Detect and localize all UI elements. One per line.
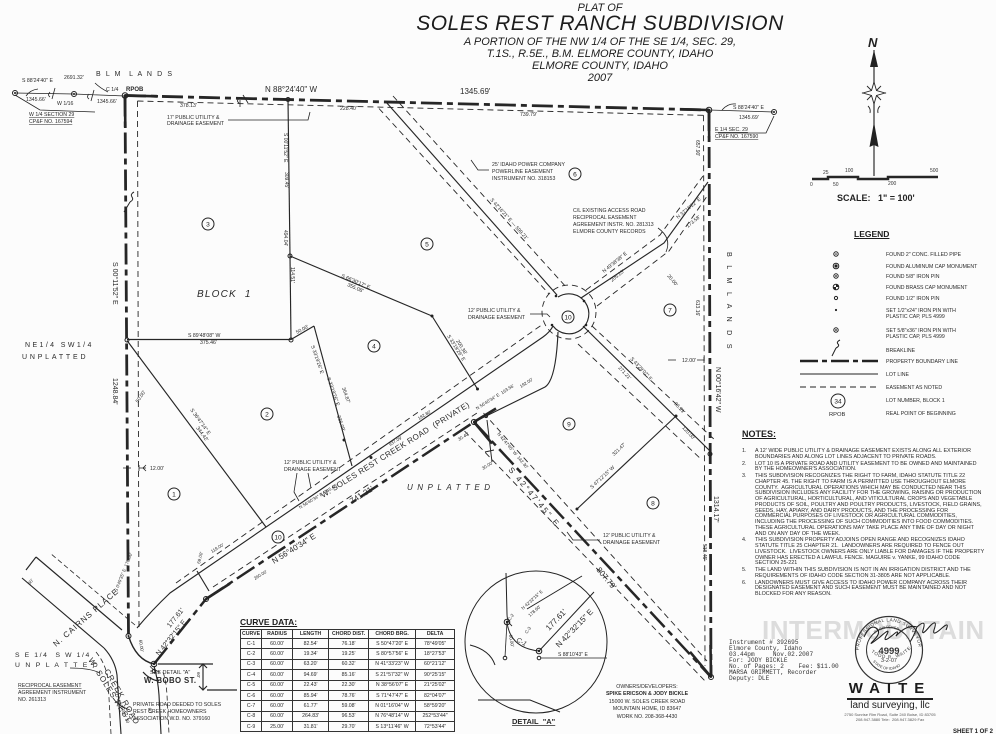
svg-text:EASEMENT AS NOTED: EASEMENT AS NOTED [886,385,942,391]
svg-text:PLASTIC CAP, PLS 4999: PLASTIC CAP, PLS 4999 [886,314,945,320]
svg-text:FOUND 1/2" IRON PIN: FOUND 1/2" IRON PIN [886,296,940,302]
svg-text:REAL POINT OF BEGINNING: REAL POINT OF BEGINNING [886,411,956,417]
svg-text:FOUND BRASS CAP MONUMENT: FOUND BRASS CAP MONUMENT [886,285,968,291]
svg-text:LOT NUMBER, BLOCK 1: LOT NUMBER, BLOCK 1 [886,398,945,404]
svg-text:LOT LINE: LOT LINE [886,372,910,378]
svg-text:PROPERTY BOUNDARY LINE: PROPERTY BOUNDARY LINE [886,359,959,365]
svg-text:PLASTIC CAP, PLS 4999: PLASTIC CAP, PLS 4999 [886,334,945,340]
svg-text:FOUND 5/8" IRON PIN: FOUND 5/8" IRON PIN [886,274,940,280]
svg-text:FOUND ALUMINUM CAP MONUMENT: FOUND ALUMINUM CAP MONUMENT [886,264,978,270]
svg-text:RPOB: RPOB [829,412,846,418]
svg-text:BREAKLINE: BREAKLINE [886,348,916,354]
svg-text:FOUND 2" CONC. FILLED PIPE: FOUND 2" CONC. FILLED PIPE [886,252,962,258]
svg-text:34: 34 [834,399,842,406]
